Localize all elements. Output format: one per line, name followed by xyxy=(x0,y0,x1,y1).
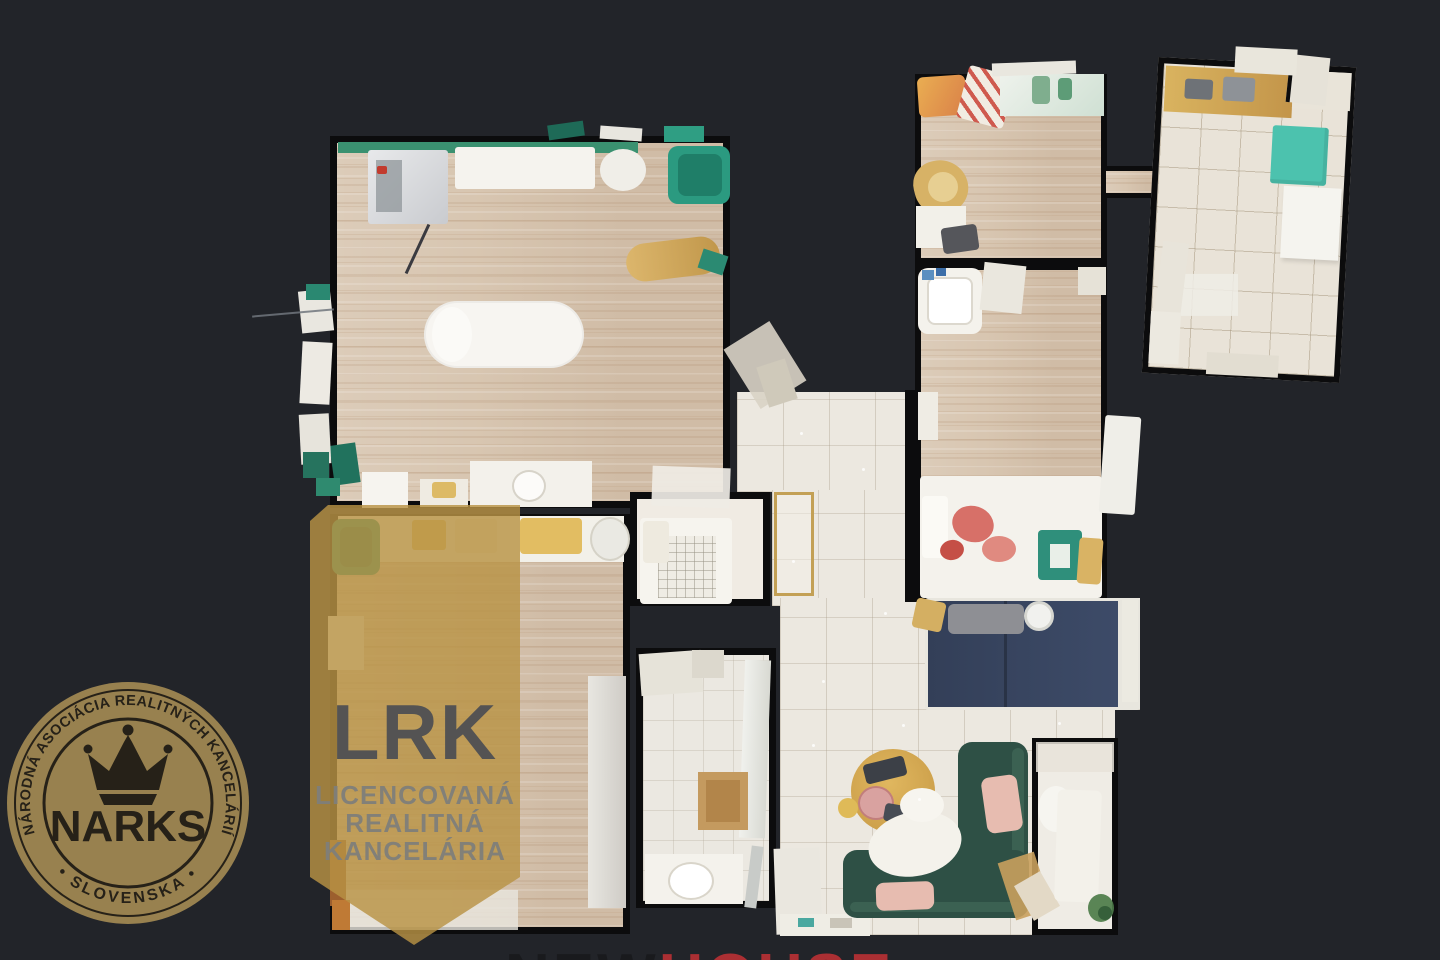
corner-fragment xyxy=(651,466,730,509)
threshold xyxy=(1206,352,1279,378)
newhouse-logo-red: HOUSE xyxy=(659,942,894,960)
kitchen-appliance-2 xyxy=(1222,76,1255,102)
bath-shelf-2 xyxy=(692,650,724,678)
gold-console xyxy=(774,492,814,596)
lrk-watermark-shield: LRK LICENCOVANÁ REALITNÁ KANCELÁRIA xyxy=(310,505,520,950)
lrk-line-1: LICENCOVANÁ xyxy=(290,781,540,809)
corner-shelf xyxy=(1078,267,1106,295)
tan-stool xyxy=(911,597,947,633)
lrk-line-2: REALITNÁ xyxy=(290,809,540,837)
white-counter-table xyxy=(455,147,595,189)
hall-shelf-teal-item xyxy=(798,918,814,927)
massage-table-headrest xyxy=(432,307,472,362)
tile-glint xyxy=(812,744,815,747)
crib-pillow xyxy=(643,521,669,563)
bath-sink-basin xyxy=(668,862,714,900)
tile-glint xyxy=(1058,722,1061,725)
gold-tray-on-bed xyxy=(1076,537,1103,585)
lrk-line-3: KANCELÁRIA xyxy=(290,837,540,865)
wall-hall-right xyxy=(905,390,917,602)
teal-fragment-2 xyxy=(664,126,704,142)
pink-pillow-2 xyxy=(876,881,935,911)
hall-shelf-items xyxy=(830,918,852,928)
laundry-pile xyxy=(980,262,1027,314)
lrk-subtitle: LICENCOVANÁ REALITNÁ KANCELÁRIA xyxy=(290,781,540,865)
wall-fragment-band xyxy=(1234,46,1297,75)
gold-towels-2 xyxy=(520,518,582,554)
floorplan-3d-dollhouse-view: NÁRODNÁ ASOCIÁCIA REALITNÝCH KANCELÁRIÍ … xyxy=(0,0,1440,960)
red-blanket-2 xyxy=(982,536,1016,562)
gray-cushion xyxy=(948,604,1024,634)
plant-on-wardrobe xyxy=(1032,76,1050,104)
nightstand xyxy=(918,392,938,440)
tile-glint xyxy=(822,680,825,683)
living-area-strip xyxy=(780,710,1115,740)
white-stool xyxy=(600,149,646,191)
newhouse-logo-dark: NEW xyxy=(505,942,659,960)
sink-bowl xyxy=(512,470,546,502)
door-swing-white xyxy=(1099,415,1142,515)
badge-name: NARKS xyxy=(50,802,206,851)
office-desk xyxy=(1054,789,1102,902)
dark-bag xyxy=(940,224,979,255)
teal-scan-bit-2 xyxy=(303,452,329,478)
floor-mat xyxy=(1176,274,1238,316)
round-side-table xyxy=(1024,601,1054,631)
mirror-wardrobe xyxy=(588,676,626,908)
room-kitchen-tiled xyxy=(1142,57,1356,383)
narks-badge: NÁRODNÁ ASOCIÁCIA REALITNÝCH KANCELÁRIÍ … xyxy=(3,678,253,928)
door-fragment-2 xyxy=(1148,311,1181,364)
teal-mat xyxy=(1270,125,1329,186)
tile-glint xyxy=(800,432,803,435)
tile-glint xyxy=(918,798,921,801)
cardboard-box-flap xyxy=(706,780,740,822)
tile-glint xyxy=(884,612,887,615)
white-table xyxy=(1280,186,1342,261)
tile-glint xyxy=(792,560,795,563)
teal-scan-bit-3 xyxy=(316,478,340,496)
curtain-strip xyxy=(1122,600,1138,702)
plant-on-wardrobe-2 xyxy=(1058,78,1072,100)
scan-fragment-2 xyxy=(299,341,332,404)
teal-laptop-screen xyxy=(1050,544,1070,568)
wardrobe-green xyxy=(1000,74,1104,116)
plant-2 xyxy=(1098,906,1112,920)
lrk-logo: LRK xyxy=(310,687,520,778)
green-armchair-seat xyxy=(678,154,722,196)
kitchen-appliance xyxy=(1184,78,1213,99)
blue-item xyxy=(922,270,934,280)
newhouse-logo: NEWHOUSE xyxy=(505,941,894,960)
trolley-red-detail xyxy=(377,166,387,174)
tile-glint xyxy=(902,724,905,727)
wood-trim-2 xyxy=(332,900,350,930)
glass-jar xyxy=(590,517,630,561)
gold-accessories xyxy=(432,482,456,498)
blue-item-2 xyxy=(936,268,946,276)
tile-glint xyxy=(862,468,865,471)
towel-stack xyxy=(362,472,408,508)
bathtub-basin xyxy=(927,277,973,325)
gold-chair-seat xyxy=(928,172,958,202)
office-shelf xyxy=(1036,742,1114,772)
pink-pillow xyxy=(980,774,1023,834)
gold-kettle xyxy=(838,798,858,818)
teal-scan-bit xyxy=(306,284,330,300)
white-pouf-2 xyxy=(900,788,944,822)
